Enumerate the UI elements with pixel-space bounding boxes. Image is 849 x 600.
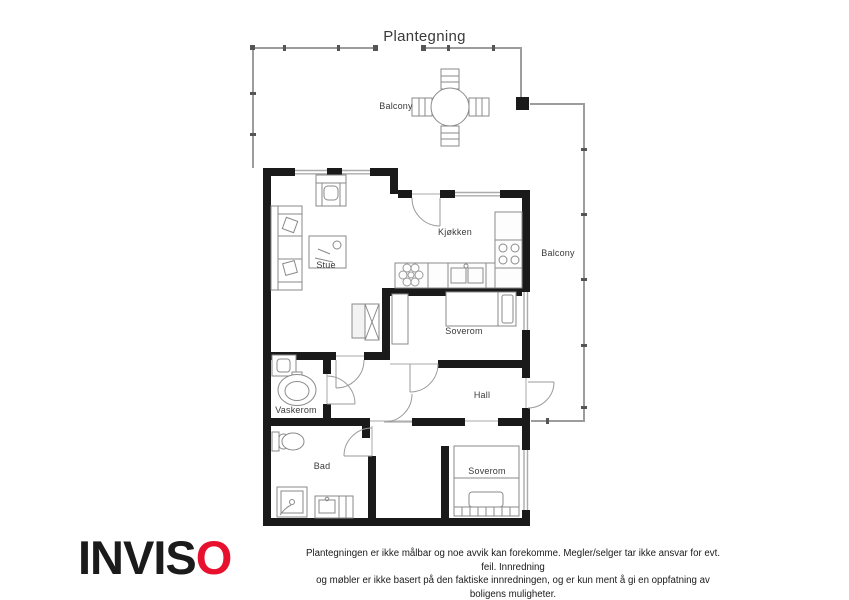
room-label-living-room: Stue bbox=[316, 260, 335, 270]
floorplan-page: Plantegning bbox=[0, 0, 849, 600]
floor-plan-drawing bbox=[0, 0, 849, 600]
laundry-fixtures bbox=[272, 355, 316, 406]
railing-corner-post bbox=[516, 97, 529, 110]
room-label-bedroom-mid: Soverom bbox=[445, 326, 482, 336]
room-label-bedroom-bottom: Soverom bbox=[468, 466, 505, 476]
disclaimer-text: Plantegningen er ikke målbar og noe avvi… bbox=[298, 547, 728, 600]
logo-text-red-o: O bbox=[196, 531, 232, 584]
disclaimer-line-1: Plantegningen er ikke målbar og noe avvi… bbox=[298, 547, 728, 574]
logo-text-black: INVIS bbox=[78, 531, 196, 584]
armchair bbox=[316, 175, 346, 206]
tv-bench bbox=[352, 304, 379, 340]
balcony-table-set bbox=[412, 69, 489, 146]
room-label-laundry: Vaskerom bbox=[275, 405, 316, 415]
sofa bbox=[271, 206, 302, 290]
room-label-balcony-right: Balcony bbox=[541, 248, 574, 258]
bedroom-bottom-furniture bbox=[454, 446, 519, 516]
room-label-hall: Hall bbox=[474, 390, 490, 400]
bedroom-mid-furniture bbox=[392, 292, 516, 344]
room-label-balcony-top: Balcony bbox=[379, 101, 412, 111]
room-label-kitchen: Kjøkken bbox=[438, 227, 472, 237]
room-label-bathroom: Bad bbox=[314, 461, 331, 471]
bathroom-fixtures bbox=[272, 432, 353, 518]
disclaimer-line-2: og møbler er ikke basert på den faktiske… bbox=[298, 574, 728, 600]
inviso-logo: INVISO bbox=[78, 534, 231, 581]
